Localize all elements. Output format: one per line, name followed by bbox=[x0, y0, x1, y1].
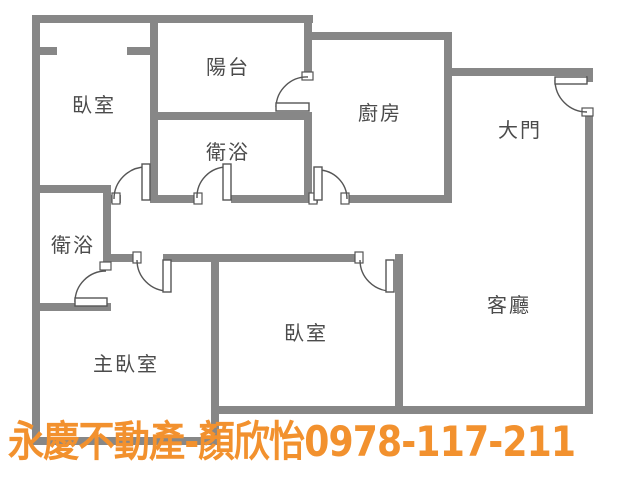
wall-balcony-bottom bbox=[150, 112, 312, 120]
room-label-balcony: 陽台 bbox=[206, 55, 250, 79]
room-label-bathroom-upper: 衛浴 bbox=[206, 140, 250, 164]
wall-hall-seg-b bbox=[158, 195, 199, 203]
floorplan-drawing: 臥室 陽台 衛浴 廚房 大門 衛浴 客廳 臥室 主臥室 bbox=[0, 0, 618, 480]
door-arc-entry bbox=[555, 80, 587, 112]
door-leaf-bedroom2 bbox=[386, 260, 394, 292]
wall-master-top-b bbox=[163, 254, 360, 262]
wall-top-outer bbox=[32, 15, 313, 23]
wall-bath-left-right bbox=[103, 185, 111, 266]
door-leaf-balcony bbox=[276, 103, 309, 111]
wall-right-outer bbox=[585, 110, 593, 414]
door-leaf-bedroom1 bbox=[142, 164, 150, 200]
wall-bedroom-balcony-divider bbox=[150, 15, 158, 203]
room-label-kitchen: 廚房 bbox=[358, 101, 402, 125]
room-label-main-entrance: 大門 bbox=[498, 118, 542, 142]
wall-bath-left-top bbox=[32, 185, 111, 193]
floorplan: 臥室 陽台 衛浴 廚房 大門 衛浴 客廳 臥室 主臥室 永慶不動產-顏欣怡097… bbox=[0, 0, 618, 480]
door-jamb bbox=[112, 193, 120, 204]
wall-hall-seg-c bbox=[231, 195, 318, 203]
door-jamb bbox=[302, 72, 313, 80]
door-jamb bbox=[341, 193, 349, 204]
wall-balcony-right-upper bbox=[304, 15, 312, 78]
wall-closet-stub-left bbox=[32, 47, 57, 55]
door-leaf-master bbox=[163, 260, 171, 292]
room-label-living-room: 客廳 bbox=[487, 293, 531, 317]
door-leaf-entry bbox=[555, 77, 587, 84]
agent-watermark: 永慶不動產-顏欣怡0978-117-211 bbox=[8, 419, 575, 465]
wall-kitchen-top bbox=[304, 32, 452, 40]
room-label-master-bedroom: 主臥室 bbox=[93, 352, 159, 376]
wall-bedroom-living-divider bbox=[395, 254, 403, 414]
wall-closet-stub-right bbox=[127, 47, 158, 55]
wall-kitchen-right bbox=[444, 32, 452, 203]
wall-bath-upper-right bbox=[304, 112, 312, 203]
door-leaf-bath-upper bbox=[223, 164, 231, 200]
wall-entry-top bbox=[444, 68, 593, 76]
door-jamb bbox=[355, 252, 363, 263]
wall-hall-seg-d bbox=[343, 195, 444, 203]
room-label-bathroom-left: 衛浴 bbox=[51, 233, 95, 257]
door-jamb bbox=[194, 193, 202, 204]
wall-left-outer bbox=[32, 15, 40, 445]
room-label-bedroom-middle: 臥室 bbox=[284, 321, 328, 345]
door-leaf-kitchen bbox=[314, 167, 322, 200]
door-leaf-bath-left bbox=[75, 298, 107, 306]
door-jamb bbox=[100, 262, 111, 270]
room-label-bedroom-top-left: 臥室 bbox=[72, 93, 116, 117]
